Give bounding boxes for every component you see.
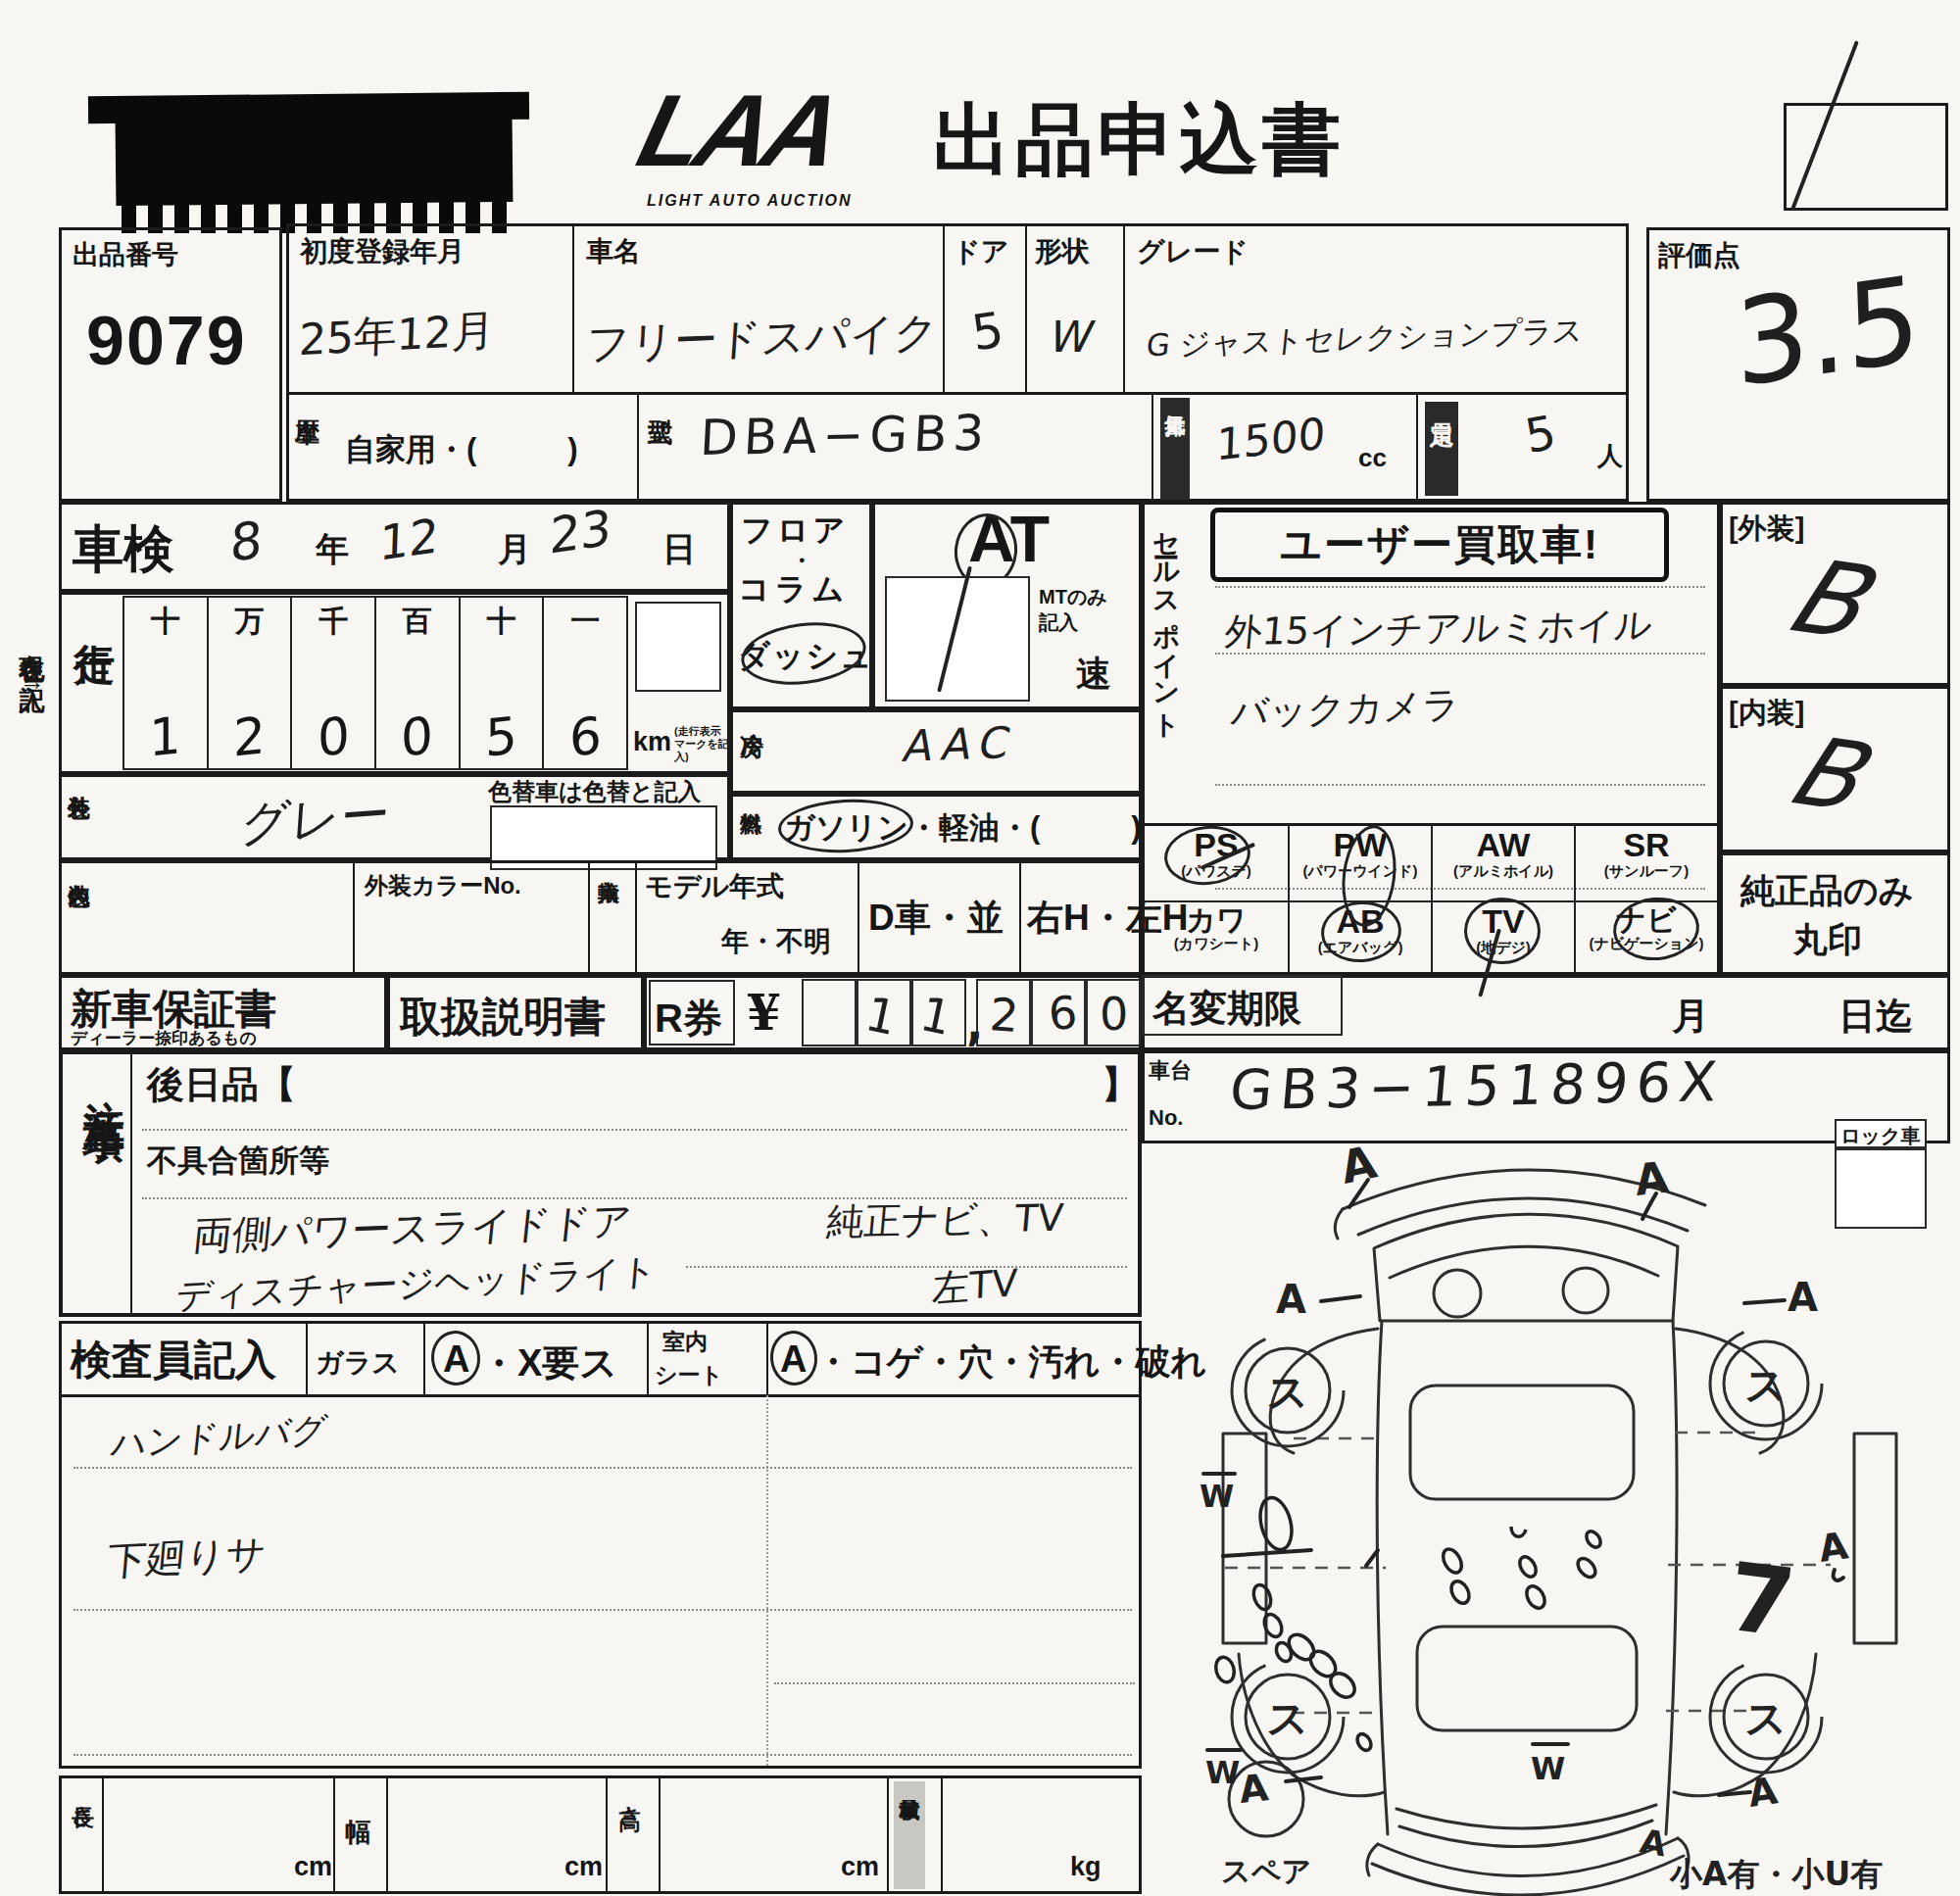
sales-point-line1: 外15インチアルミホイル <box>1223 600 1655 657</box>
load-unit: kg <box>1070 1852 1102 1882</box>
later-items-label: 後日品【 <box>147 1060 296 1110</box>
load-label: 積載量 <box>894 1781 925 1889</box>
mileage-unit: km <box>633 727 671 757</box>
a-mark-left-rear: A <box>1237 1766 1270 1812</box>
interior-color-label: 内装色 <box>65 866 95 969</box>
amount-comma: , <box>966 997 983 1050</box>
mileage-header: 百 <box>403 602 432 642</box>
auction-sheet: LAA LIGHT AUTO AUCTION 出品申込書 出品番号 9079 初… <box>0 0 1960 1896</box>
inspector-hand-line2: 下廻りサ <box>105 1527 268 1589</box>
shift-column-label: コラム <box>738 568 849 611</box>
capacity-label: 定員 <box>1425 402 1458 496</box>
mileage-cell: 十5 <box>459 598 543 768</box>
ac-label: 冷房 <box>736 715 767 790</box>
mileage-label: 走行 <box>67 611 122 758</box>
user-buyback-badge: ユーザー買取車! <box>1210 508 1669 582</box>
shaken-month-suffix: 月 <box>498 527 531 572</box>
mileage-header: 十 <box>487 602 516 642</box>
a-mark-right-rear-door: A <box>1816 1524 1851 1571</box>
w-mark-left-rear: W <box>1205 1754 1240 1791</box>
mileage-digit: 0 <box>401 705 433 768</box>
defects-label: 不具合箇所等 <box>147 1141 329 1182</box>
exterior-color-label: 外装色 <box>65 778 95 858</box>
first-reg-label: 初度登録年月 <box>300 233 465 270</box>
notes-hand-line3: 純正ナビ、TV <box>825 1193 1065 1247</box>
form-title: 出品申込書 <box>933 88 1345 194</box>
laa-logo: LAA <box>627 73 848 189</box>
mileage-digit: 5 <box>485 705 517 768</box>
later-items-bracket-close: 】 <box>1102 1060 1139 1110</box>
import-label: 輸入車 <box>594 864 623 972</box>
warranty-sub-label: ディーラー捺印あるもの <box>71 1027 257 1049</box>
capacity-unit: 人 <box>1597 439 1623 473</box>
chassis-label-top: 車台 <box>1149 1056 1192 1086</box>
color-change-note: 色替車は色替と記入 <box>488 776 701 807</box>
score-value: 3.5 <box>1733 250 1923 413</box>
grade-label: グレード <box>1137 233 1249 270</box>
w-mark-rear-gate: W <box>1531 1750 1565 1787</box>
history-label: 車歴 <box>292 400 324 498</box>
rticket-label: R券 <box>655 992 722 1045</box>
model-year-label: モデル年式 <box>645 868 784 905</box>
a-mark-front-right: A <box>1633 1152 1671 1205</box>
corner-count-box <box>1784 103 1948 211</box>
score-label: 評価点 <box>1658 237 1740 274</box>
length-label: 長さ <box>69 1789 99 1879</box>
shape-value: W <box>1047 312 1090 362</box>
mileage-cell: 一6 <box>542 598 626 768</box>
name-change-month: 月 <box>1672 992 1709 1042</box>
shaken-year-suffix: 年 <box>316 527 349 572</box>
color-no-label: 外装カラーNo. <box>365 870 521 901</box>
amount-digit-4: 6 <box>1047 986 1079 1041</box>
shaken-month-value: 12 <box>378 507 439 570</box>
tv-circle <box>1464 898 1541 964</box>
mileage-blank-box <box>635 602 721 692</box>
notes-hand-line4: 左TV <box>931 1258 1018 1314</box>
width-label: 幅 <box>345 1815 371 1850</box>
mt-note-line2: 記入 <box>1039 609 1078 636</box>
genuine-parts-note-line1: 純正品のみ <box>1740 868 1914 914</box>
mileage-digit: 6 <box>569 705 602 768</box>
manual-label: 取扱説明書 <box>400 990 606 1045</box>
lot-number-value: 9079 <box>86 302 247 380</box>
mileage-header: 一 <box>570 602 600 642</box>
ac-value: AAC <box>900 717 1014 771</box>
option-code: SR <box>1576 828 1717 863</box>
seat-option-rest: ・コゲ・穴・汚れ・破れ <box>815 1338 1206 1386</box>
width-unit: cm <box>564 1852 603 1882</box>
shaken-day-suffix: 日 <box>662 527 696 572</box>
name-change-label: 名変期限 <box>1152 984 1301 1034</box>
lot-number-label: 出品番号 <box>73 237 178 272</box>
notes-label: 注意事項 <box>76 1066 131 1309</box>
doors-label: ドア <box>953 233 1008 270</box>
mileage-cell: 万2 <box>207 598 291 768</box>
spare-tire-label: スペア <box>1221 1854 1311 1888</box>
yen-sign: ¥ <box>747 984 781 1042</box>
mileage-header: 万 <box>235 602 265 642</box>
shaken-label: 車検 <box>73 515 174 584</box>
displacement-label: 排気量 <box>1160 398 1190 500</box>
laa-logo-subtext: LIGHT AUTO AUCTION <box>647 192 853 210</box>
option-sub: (サンルーフ) <box>1576 863 1717 879</box>
option-code: AW <box>1433 828 1574 863</box>
mt-note-line1: MTのみ <box>1039 584 1107 610</box>
name-change-until: 日迄 <box>1838 992 1913 1042</box>
seat-label-line2: シート <box>655 1360 723 1390</box>
genuine-parts-note-line2: 丸印 <box>1793 917 1862 963</box>
car-name-label: 車名 <box>586 233 641 270</box>
displacement-unit: cc <box>1358 443 1387 473</box>
chassis-label-no: No. <box>1149 1105 1183 1131</box>
option-code: カワ <box>1145 904 1288 936</box>
mt-speed-box <box>885 576 1030 702</box>
history-value: 自家用・( ) <box>345 429 578 470</box>
option-aw: AW(アルミホイル) <box>1431 826 1574 900</box>
glass-label: ガラス <box>316 1344 400 1382</box>
a-mark-left-front-fender: A <box>1276 1277 1306 1322</box>
mileage-digit: 0 <box>318 705 350 768</box>
interior-grade-label: [内装] <box>1729 694 1804 733</box>
mileage-header: 十 <box>151 602 180 642</box>
option-sr: SR(サンルーフ) <box>1574 826 1717 900</box>
shaken-day-value: 23 <box>549 499 612 565</box>
dealer-car-options: D車・並 <box>868 894 1004 943</box>
mileage-digit: 2 <box>233 705 266 768</box>
exterior-color-value: グレー <box>238 781 392 857</box>
mileage-cell: 千0 <box>290 598 374 768</box>
fuel-label: 燃料 <box>736 796 765 856</box>
small-damage-note: 小A有・小U有 <box>1669 1855 1883 1893</box>
mileage-digit-grid: 十1 万2 千0 百0 十5 一6 <box>122 596 628 770</box>
mileage-cell: 十1 <box>124 598 207 768</box>
shape-label: 形状 <box>1035 233 1090 270</box>
mileage-digit: 1 <box>149 705 181 768</box>
a-mark-rear-bumper: A <box>1638 1821 1671 1864</box>
model-code-label: 型式 <box>645 400 677 498</box>
glass-option-rest: ・X要ス <box>480 1338 617 1388</box>
height-unit: cm <box>841 1852 879 1882</box>
amount-digit-3: 2 <box>988 988 1020 1043</box>
option-sub: (アルミホイル) <box>1433 863 1574 879</box>
car-damage-diagram: ス ス ス ス <box>1196 1107 1960 1896</box>
shaken-year-value: 8 <box>229 510 264 573</box>
a-mark-front-left: A <box>1336 1135 1381 1193</box>
wheel-mark-rear-left: ス <box>1267 1694 1309 1742</box>
first-reg-value: 25年12月 <box>298 302 496 370</box>
redacted-dealer-stamp-body <box>116 118 514 206</box>
a-mark-right-front-fender: A <box>1788 1275 1818 1320</box>
height-label: 高さ <box>615 1789 646 1879</box>
amount-digit-5: 0 <box>1100 988 1128 1041</box>
wheel-mark-rear-right: ス <box>1745 1694 1788 1742</box>
wheel-mark-front-left: ス <box>1267 1368 1309 1416</box>
exterior-grade-label: [外装] <box>1729 510 1804 549</box>
mileage-cell: 百0 <box>374 598 459 768</box>
model-year-value: 年・不明 <box>721 923 831 960</box>
seven-mark-right-rear: 7 <box>1722 1542 1800 1659</box>
a-mark-rear-right: A <box>1745 1769 1781 1816</box>
speed-suffix: 速 <box>1076 651 1111 699</box>
inspector-label: 検査員記入 <box>71 1333 276 1387</box>
margin-note: 現在色を記入→ <box>16 637 50 892</box>
seat-label-line1: 室内 <box>662 1327 708 1357</box>
option-sub: (カワシート) <box>1145 936 1288 951</box>
model-code-value: DBA−GB3 <box>699 405 992 466</box>
wheel-mark-front-right: ス <box>1745 1361 1788 1409</box>
user-buyback-text: ユーザー買取車! <box>1280 517 1599 572</box>
sales-point-line2: バックカメラ <box>1229 680 1461 738</box>
length-unit: cm <box>294 1852 332 1882</box>
mileage-unit-note: (走行表示マークを記入) <box>674 725 731 764</box>
mileage-header: 千 <box>318 602 348 642</box>
option-kawa: カワ(カワシート) <box>1145 900 1288 972</box>
w-mark-left-side: W <box>1200 1478 1234 1515</box>
